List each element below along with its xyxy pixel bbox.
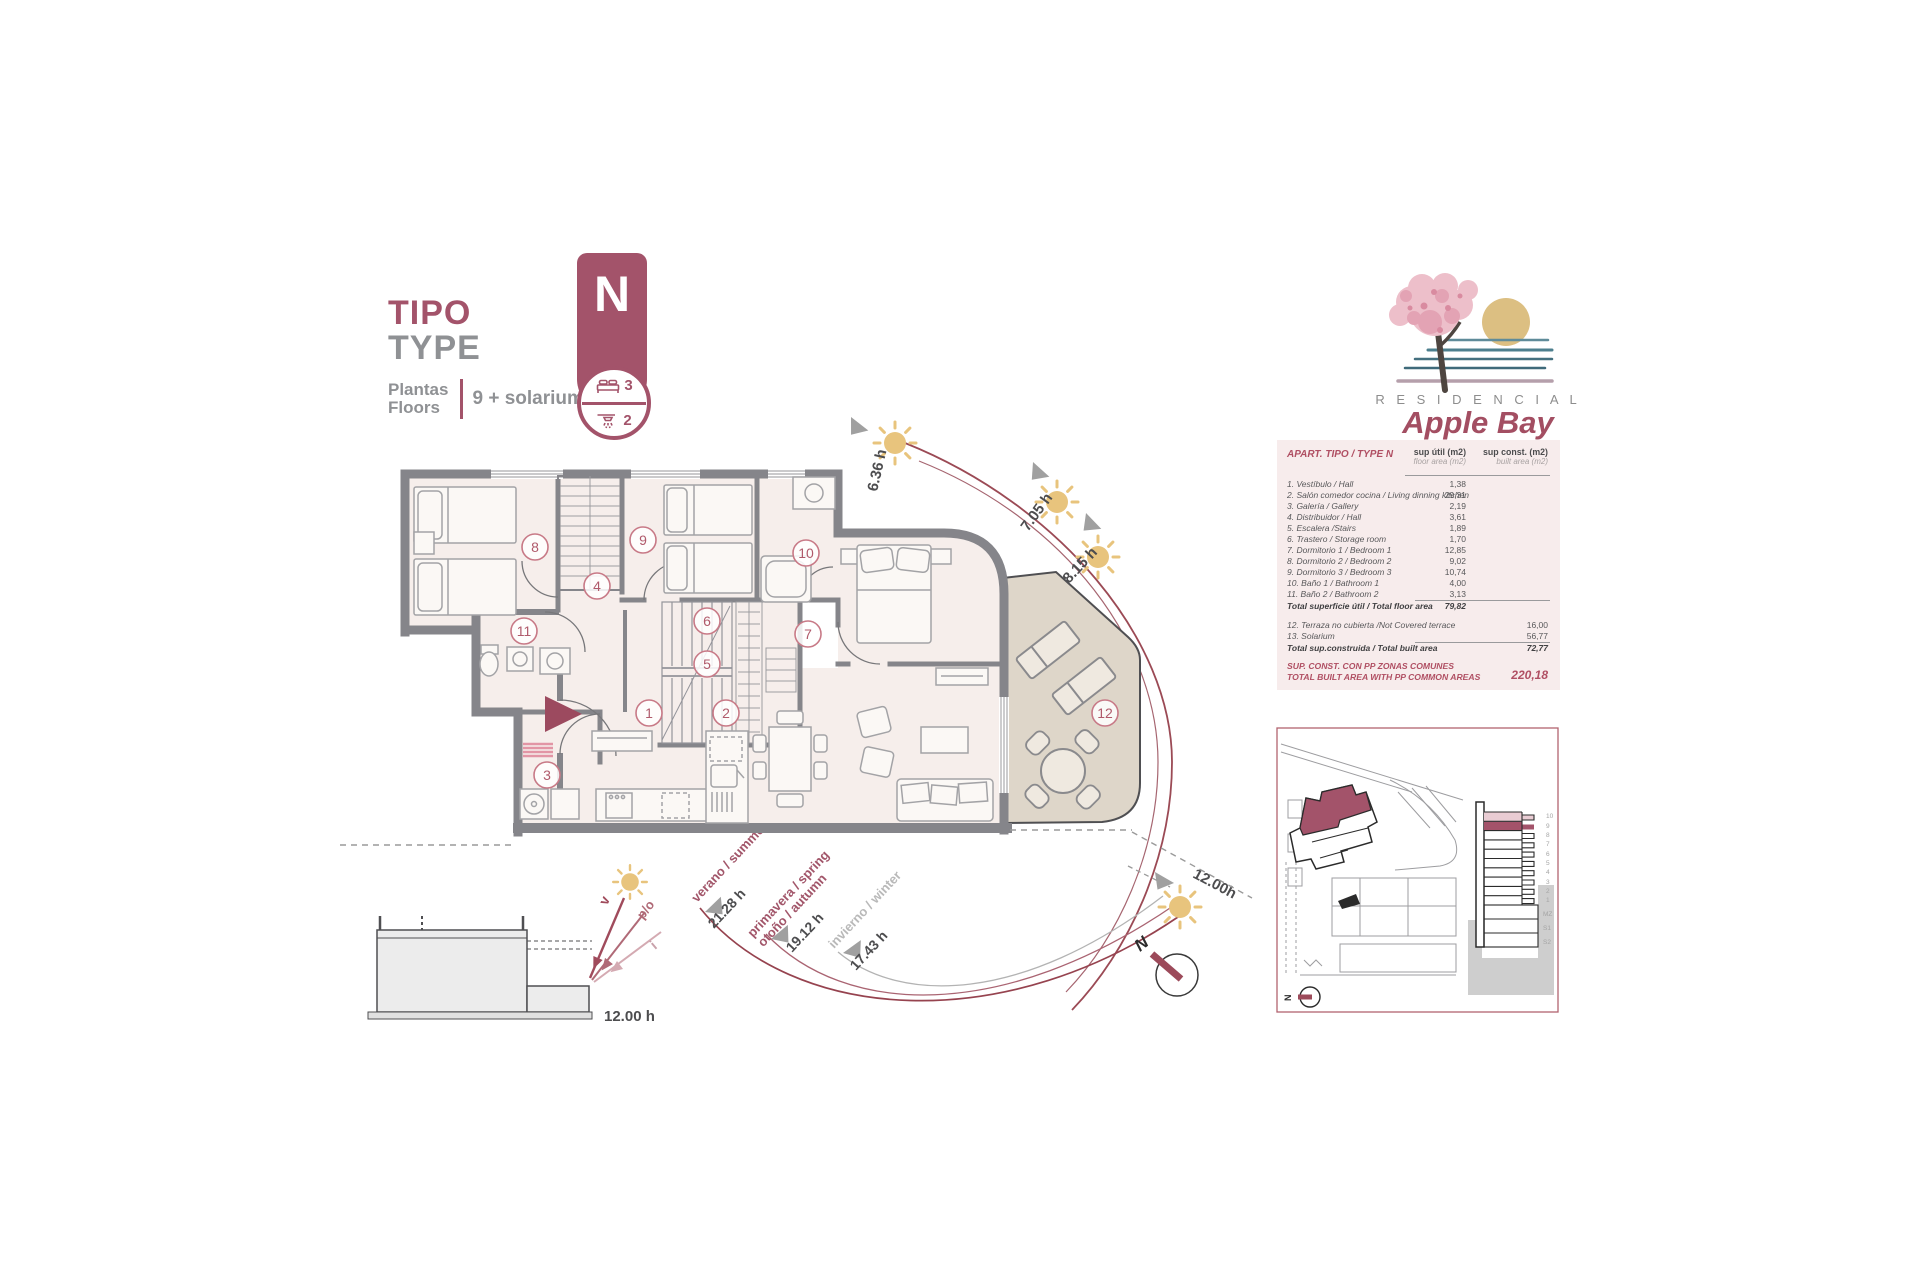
spring-autumn-ray-label: p/o xyxy=(634,897,658,922)
svg-text:MZ: MZ xyxy=(1543,911,1552,918)
svg-text:6: 6 xyxy=(1546,851,1550,858)
winter-label: invierno / winter xyxy=(825,868,904,951)
svg-text:S1: S1 xyxy=(1543,925,1551,932)
svg-text:10: 10 xyxy=(1546,813,1554,820)
plan-drawing: 6.36 h 7.05 h 8.15 h 12.00h verano / sum… xyxy=(0,0,1920,1280)
svg-text:3: 3 xyxy=(1546,879,1550,886)
room-number: 9 xyxy=(639,532,647,548)
room-number: 2 xyxy=(722,705,730,721)
bedrooms-count: 3 xyxy=(624,377,632,394)
summer-ray-label: v xyxy=(595,893,613,907)
svg-text:8: 8 xyxy=(1546,832,1550,839)
logo-tree xyxy=(1389,273,1478,390)
floor-plan: 1 2 3 4 5 6 7 8 9 10 11 12 xyxy=(340,469,1252,898)
section-noon-label: 12.00 h xyxy=(604,1008,655,1025)
svg-text:2: 2 xyxy=(1546,888,1550,895)
room-number: 8 xyxy=(531,539,539,555)
svg-text:S2: S2 xyxy=(1543,939,1551,946)
noon-label: 12.00h xyxy=(1190,866,1239,903)
room-number: 10 xyxy=(798,545,814,561)
svg-text:5: 5 xyxy=(1546,860,1550,867)
room-number: 7 xyxy=(804,626,812,642)
section-diagram: v p/o i 12.00 h xyxy=(368,893,661,1025)
sun-icon xyxy=(613,865,647,899)
site-plan: N 10 xyxy=(1277,728,1558,1012)
rooms-badge: 3 2 xyxy=(577,366,651,440)
compass: N xyxy=(1131,932,1198,996)
logo-name: Apple Bay xyxy=(1401,405,1555,440)
room-number: 11 xyxy=(517,623,532,639)
room-number: 4 xyxy=(593,578,601,594)
logo: R E S I D E N C I A L Apple Bay xyxy=(1375,273,1580,440)
room-number: 1 xyxy=(645,705,653,721)
season-labels: verano / summer 21.28 h primavera / spri… xyxy=(688,819,904,973)
site-compass-n: N xyxy=(1283,995,1293,1002)
spring-autumn-arc xyxy=(766,904,1176,995)
bed-icon xyxy=(595,378,621,394)
bathrooms-count: 2 xyxy=(623,412,631,429)
shower-icon xyxy=(596,412,620,429)
sunrise-spring-label: 7.05 h xyxy=(1017,490,1056,534)
svg-text:7: 7 xyxy=(1546,841,1550,848)
sun-icon xyxy=(1159,886,1201,928)
room-number: 5 xyxy=(703,656,711,672)
room-number: 6 xyxy=(703,613,711,629)
room-number: 12 xyxy=(1097,705,1113,721)
svg-text:1: 1 xyxy=(1546,897,1550,904)
svg-text:4: 4 xyxy=(1546,869,1550,876)
svg-text:9: 9 xyxy=(1546,823,1550,830)
room-number: 3 xyxy=(543,767,551,783)
sunrise-summer-label: 6.36 h xyxy=(864,448,890,493)
winter-ray-label: i xyxy=(647,938,660,953)
page: TIPO TYPE Plantas Floors 9 + solarium N xyxy=(0,0,1920,1280)
